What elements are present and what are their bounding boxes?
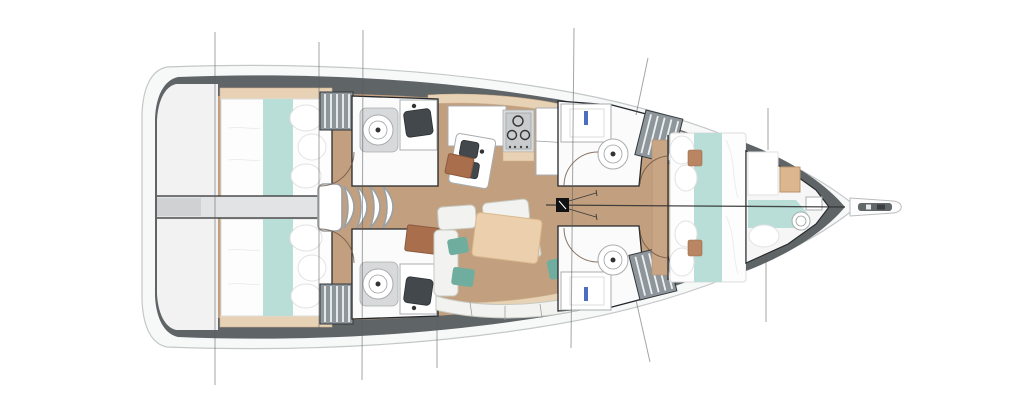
salon-cushion-teal-1 [447,236,469,255]
salon-cushion-teal-2 [451,267,475,288]
mast-post [556,198,569,212]
bowsprit-anchor-roller [850,198,901,216]
faucet-blue [584,287,588,301]
engine-hatch-corridor [157,196,320,218]
hanging-locker-aft-starboard [320,284,353,324]
hanging-locker-aft-port [320,92,353,130]
yacht-floor-plan [0,0,1024,415]
floor-plan-drawing [0,0,1024,415]
faucet-blue [584,111,588,125]
stove [503,110,534,161]
forepeak-toilet [792,212,810,230]
owner-cabin [652,133,746,282]
aft-cabin-starboard [221,219,332,316]
forepeak-wardrobe [780,167,800,192]
fwd-head-port [558,101,646,186]
aft-head-port [352,96,438,186]
forepeak-sink [806,197,822,210]
salon-table [472,212,543,264]
aft-cabin-port [221,99,332,196]
